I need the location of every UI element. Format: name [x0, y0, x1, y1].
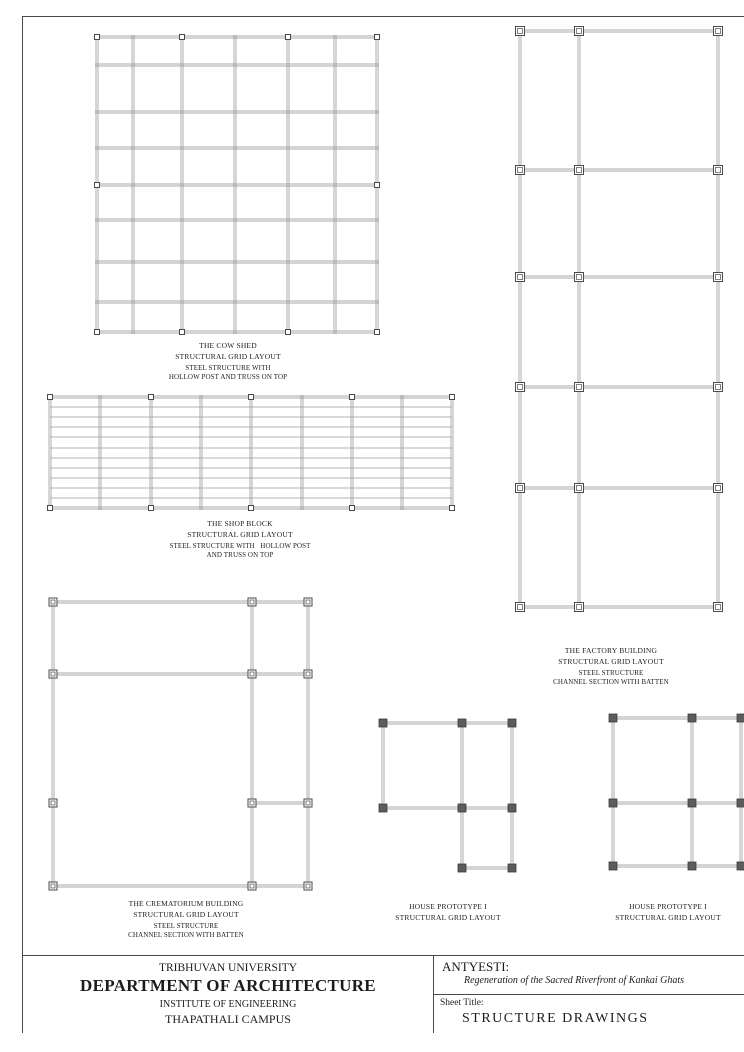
- sheet-title: STRUCTURE DRAWINGS: [462, 1010, 744, 1027]
- cow-shed-caption: THE COW SHEDSTRUCTURAL GRID LAYOUTSTEEL …: [68, 340, 388, 382]
- caption-subline: CHANNEL SECTION WITH BATTEN: [26, 931, 346, 940]
- caption-line: STRUCTURAL GRID LAYOUT: [508, 912, 744, 923]
- sheet-title-cell: Sheet Title: STRUCTURE DRAWINGS: [434, 994, 744, 1033]
- caption-line: THE COW SHED: [68, 340, 388, 351]
- caption-subline: STEEL STRUCTURE WITH HOLLOW POST: [80, 542, 400, 551]
- campus-name: THAPATHALI CAMPUS: [23, 1012, 433, 1027]
- caption-line: HOUSE PROTOTYPE I: [508, 901, 744, 912]
- project-name: ANTYESTI:: [442, 959, 744, 975]
- title-block-institution: TRIBHUVAN UNIVERSITY DEPARTMENT OF ARCHI…: [23, 956, 433, 1033]
- title-block-project: ANTYESTI: Regeneration of the Sacred Riv…: [433, 956, 744, 1033]
- caption-subline: STEEL STRUCTURE: [26, 922, 346, 931]
- caption-line: STRUCTURAL GRID LAYOUT: [80, 529, 400, 540]
- project-subtitle: Regeneration of the Sacred Riverfront of…: [464, 975, 744, 987]
- drawings-layer: THE COW SHEDSTRUCTURAL GRID LAYOUTSTEEL …: [0, 0, 744, 1052]
- drawing-sheet: THE COW SHEDSTRUCTURAL GRID LAYOUTSTEEL …: [0, 0, 744, 1052]
- house-prototype-left-grid-drawing: [373, 713, 522, 878]
- factory-building-grid-drawing: [510, 21, 728, 617]
- caption-line: THE FACTORY BUILDING: [451, 645, 744, 656]
- caption-subline: CHANNEL SECTION WITH BATTEN: [451, 678, 744, 687]
- caption-subline: STEEL STRUCTURE: [451, 669, 744, 678]
- house-prototype-right-grid-drawing: [603, 708, 744, 876]
- project-cell: ANTYESTI: Regeneration of the Sacred Riv…: [434, 956, 744, 994]
- house-prototype-right-caption: HOUSE PROTOTYPE ISTRUCTURAL GRID LAYOUT: [508, 901, 744, 923]
- department-name: DEPARTMENT OF ARCHITECTURE: [23, 976, 433, 996]
- sheet-title-label: Sheet Title:: [440, 997, 744, 1009]
- institute-name: INSTITUTE OF ENGINEERING: [23, 998, 433, 1011]
- caption-line: STRUCTURAL GRID LAYOUT: [451, 656, 744, 667]
- caption-subline: AND TRUSS ON TOP: [80, 551, 400, 560]
- caption-line: THE SHOP BLOCK: [80, 518, 400, 529]
- university-name: TRIBHUVAN UNIVERSITY: [23, 961, 433, 975]
- caption-subline: STEEL STRUCTURE WITH: [68, 364, 388, 373]
- caption-subline: HOLLOW POST AND TRUSS ON TOP: [68, 373, 388, 382]
- title-block: TRIBHUVAN UNIVERSITY DEPARTMENT OF ARCHI…: [23, 955, 744, 1033]
- cow-shed-grid-drawing: [87, 27, 387, 342]
- factory-building-caption: THE FACTORY BUILDINGSTRUCTURAL GRID LAYO…: [451, 645, 744, 687]
- crematorium-building-grid-drawing: [43, 592, 318, 896]
- shop-block-caption: THE SHOP BLOCKSTRUCTURAL GRID LAYOUTSTEE…: [80, 518, 400, 560]
- shop-block-grid-drawing: [40, 387, 462, 518]
- caption-line: STRUCTURAL GRID LAYOUT: [68, 351, 388, 362]
